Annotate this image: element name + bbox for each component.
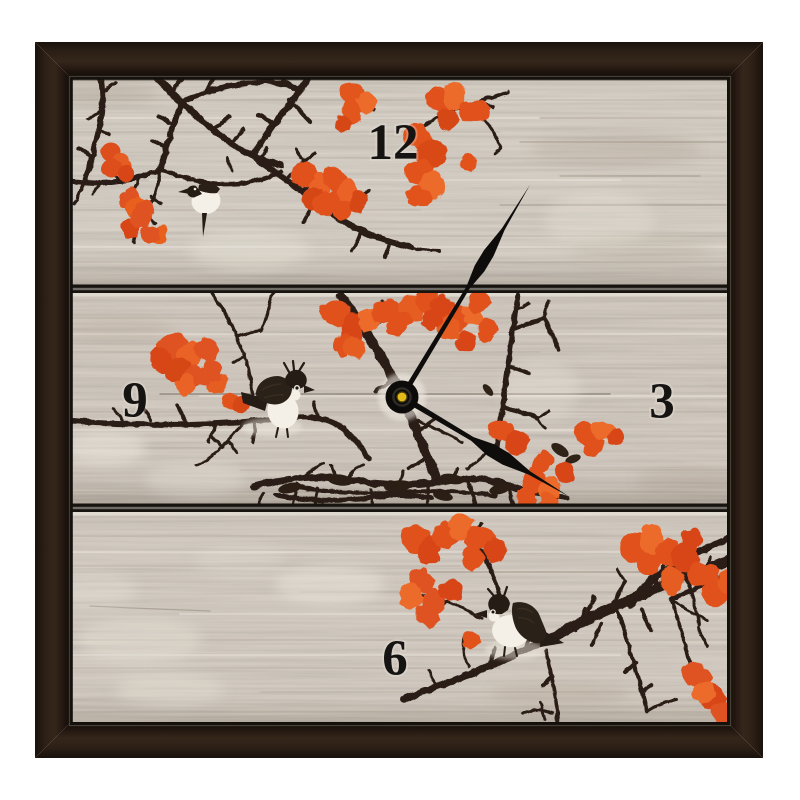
svg-text:9: 9 bbox=[122, 373, 148, 429]
svg-text:12: 12 bbox=[368, 115, 419, 171]
svg-text:3: 3 bbox=[649, 374, 675, 430]
svg-text:6: 6 bbox=[382, 631, 408, 687]
